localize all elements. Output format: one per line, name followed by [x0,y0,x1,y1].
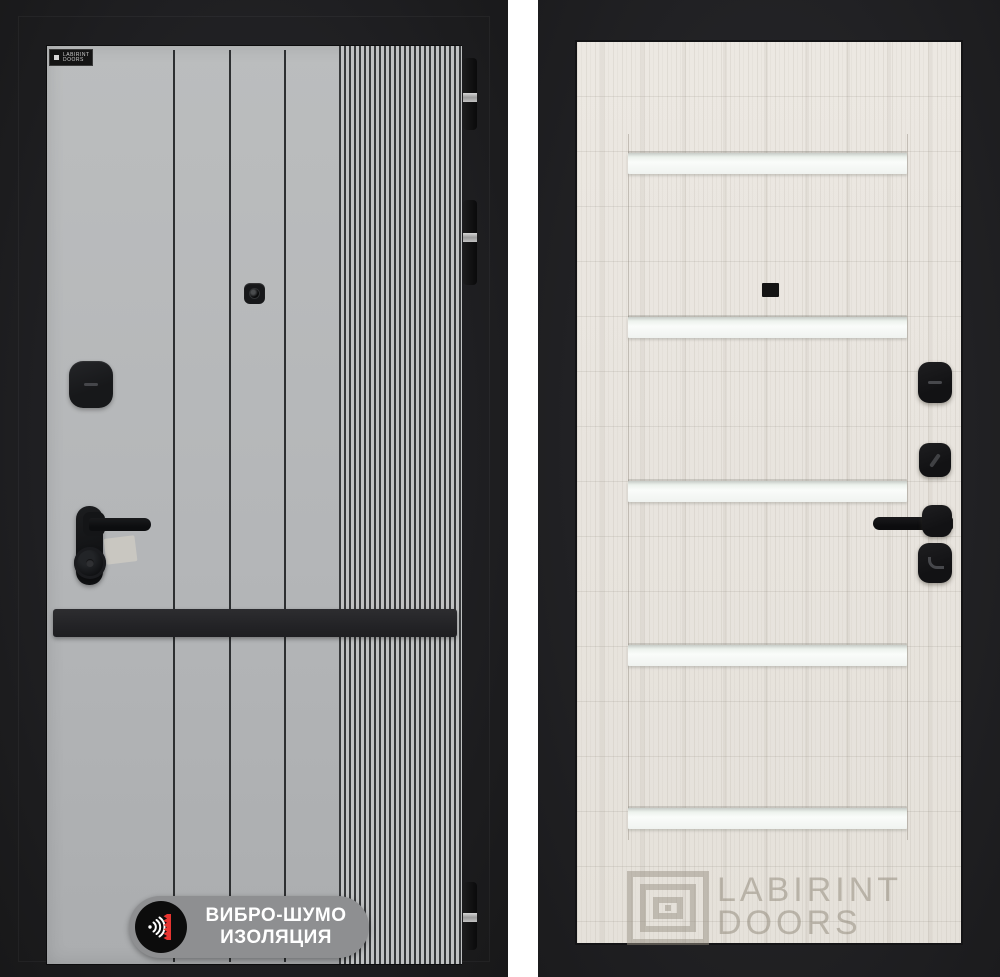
brand-stamp-text: LABIRINT DOORS [63,53,90,63]
badge-label: ВИБРО-ШУМО ИЗОЛЯЦИЯ [191,896,361,958]
keyhole-slot [929,453,941,468]
decor-bumper-strip [53,609,457,637]
keyhole-cover [69,361,113,408]
door-handle-lever [89,518,151,531]
watermark: LABIRINT DOORS [717,874,902,940]
protective-film [104,535,138,565]
ribbed-texture [339,46,462,964]
latch-lever-glyph [928,557,944,569]
night-latch [918,543,952,583]
peephole [244,283,265,304]
peephole [762,283,779,297]
lock-cylinder [919,443,951,477]
glass-insert [628,808,907,829]
vertical-groove [907,134,908,840]
hinge [463,882,477,950]
lock-cylinder [74,547,106,579]
brand-stamp: LABIRINT DOORS [49,49,93,66]
door-exterior-panel: LABIRINT DOORS [46,45,462,965]
vertical-groove [284,50,286,962]
badge-label-line2: ИЗОЛЯЦИЯ [220,927,332,949]
glass-insert [628,317,907,338]
vertical-groove [229,50,231,962]
soundproofing-badge: ВИБРО-ШУМО ИЗОЛЯЦИЯ [129,896,369,958]
exterior-door-photo: LABIRINT DOORS [0,0,508,977]
watermark-line2: DOORS [717,904,862,942]
glass-insert [628,153,907,174]
labyrinth-logo-icon [626,870,710,946]
deadbolt-thumbturn [918,362,952,403]
vertical-groove [173,50,175,962]
glass-insert [628,481,907,502]
keyhole-slot [84,383,98,386]
hinge [463,200,477,285]
badge-icon-circle [135,901,187,953]
brand-stamp-line2: DOORS [63,57,84,63]
lock-cylinder-keyway [86,559,94,567]
peephole-lens [249,288,260,299]
glass-insert [628,645,907,666]
interior-door-photo: LABIRINT DOORS [538,0,1000,977]
hinge-band [463,93,477,102]
sound-waves-icon [143,909,179,945]
hinge [463,58,477,130]
hinge-band [463,913,477,922]
thumbturn-slot [928,381,942,384]
brand-stamp-icon [52,53,61,62]
hinge-band [463,233,477,242]
handle-backplate [922,505,952,537]
badge-label-line1: ВИБРО-ШУМО [205,905,346,927]
door-interior-panel: LABIRINT DOORS [575,40,963,945]
